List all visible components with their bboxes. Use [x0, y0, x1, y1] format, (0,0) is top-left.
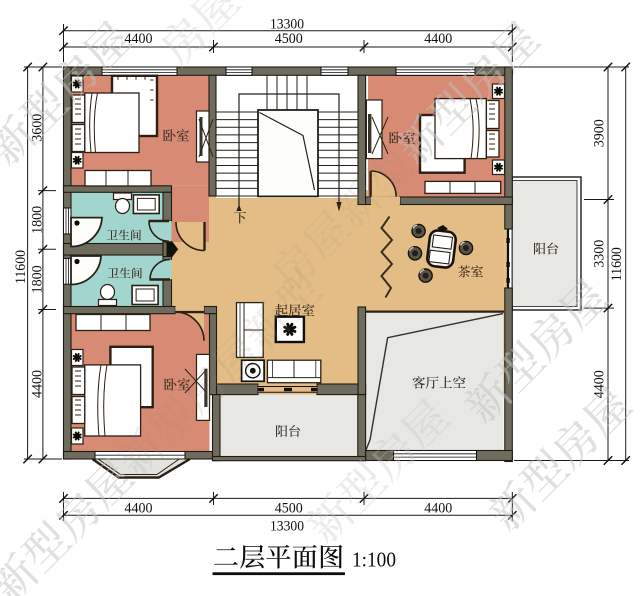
svg-text:3300: 3300	[591, 239, 608, 267]
svg-text:4400: 4400	[424, 500, 452, 517]
svg-text:4500: 4500	[275, 30, 303, 47]
svg-text:4500: 4500	[275, 500, 303, 517]
svg-text:4400: 4400	[29, 370, 46, 398]
svg-text:13300: 13300	[270, 518, 304, 535]
svg-text:1:100: 1:100	[352, 548, 396, 572]
svg-text:1800: 1800	[29, 265, 46, 293]
svg-text:4400: 4400	[424, 30, 452, 47]
svg-text:11600: 11600	[12, 250, 29, 284]
svg-text:1800: 1800	[28, 206, 45, 234]
svg-text:4400: 4400	[125, 500, 153, 517]
svg-text:3900: 3900	[591, 119, 608, 147]
svg-text:11600: 11600	[608, 247, 625, 281]
